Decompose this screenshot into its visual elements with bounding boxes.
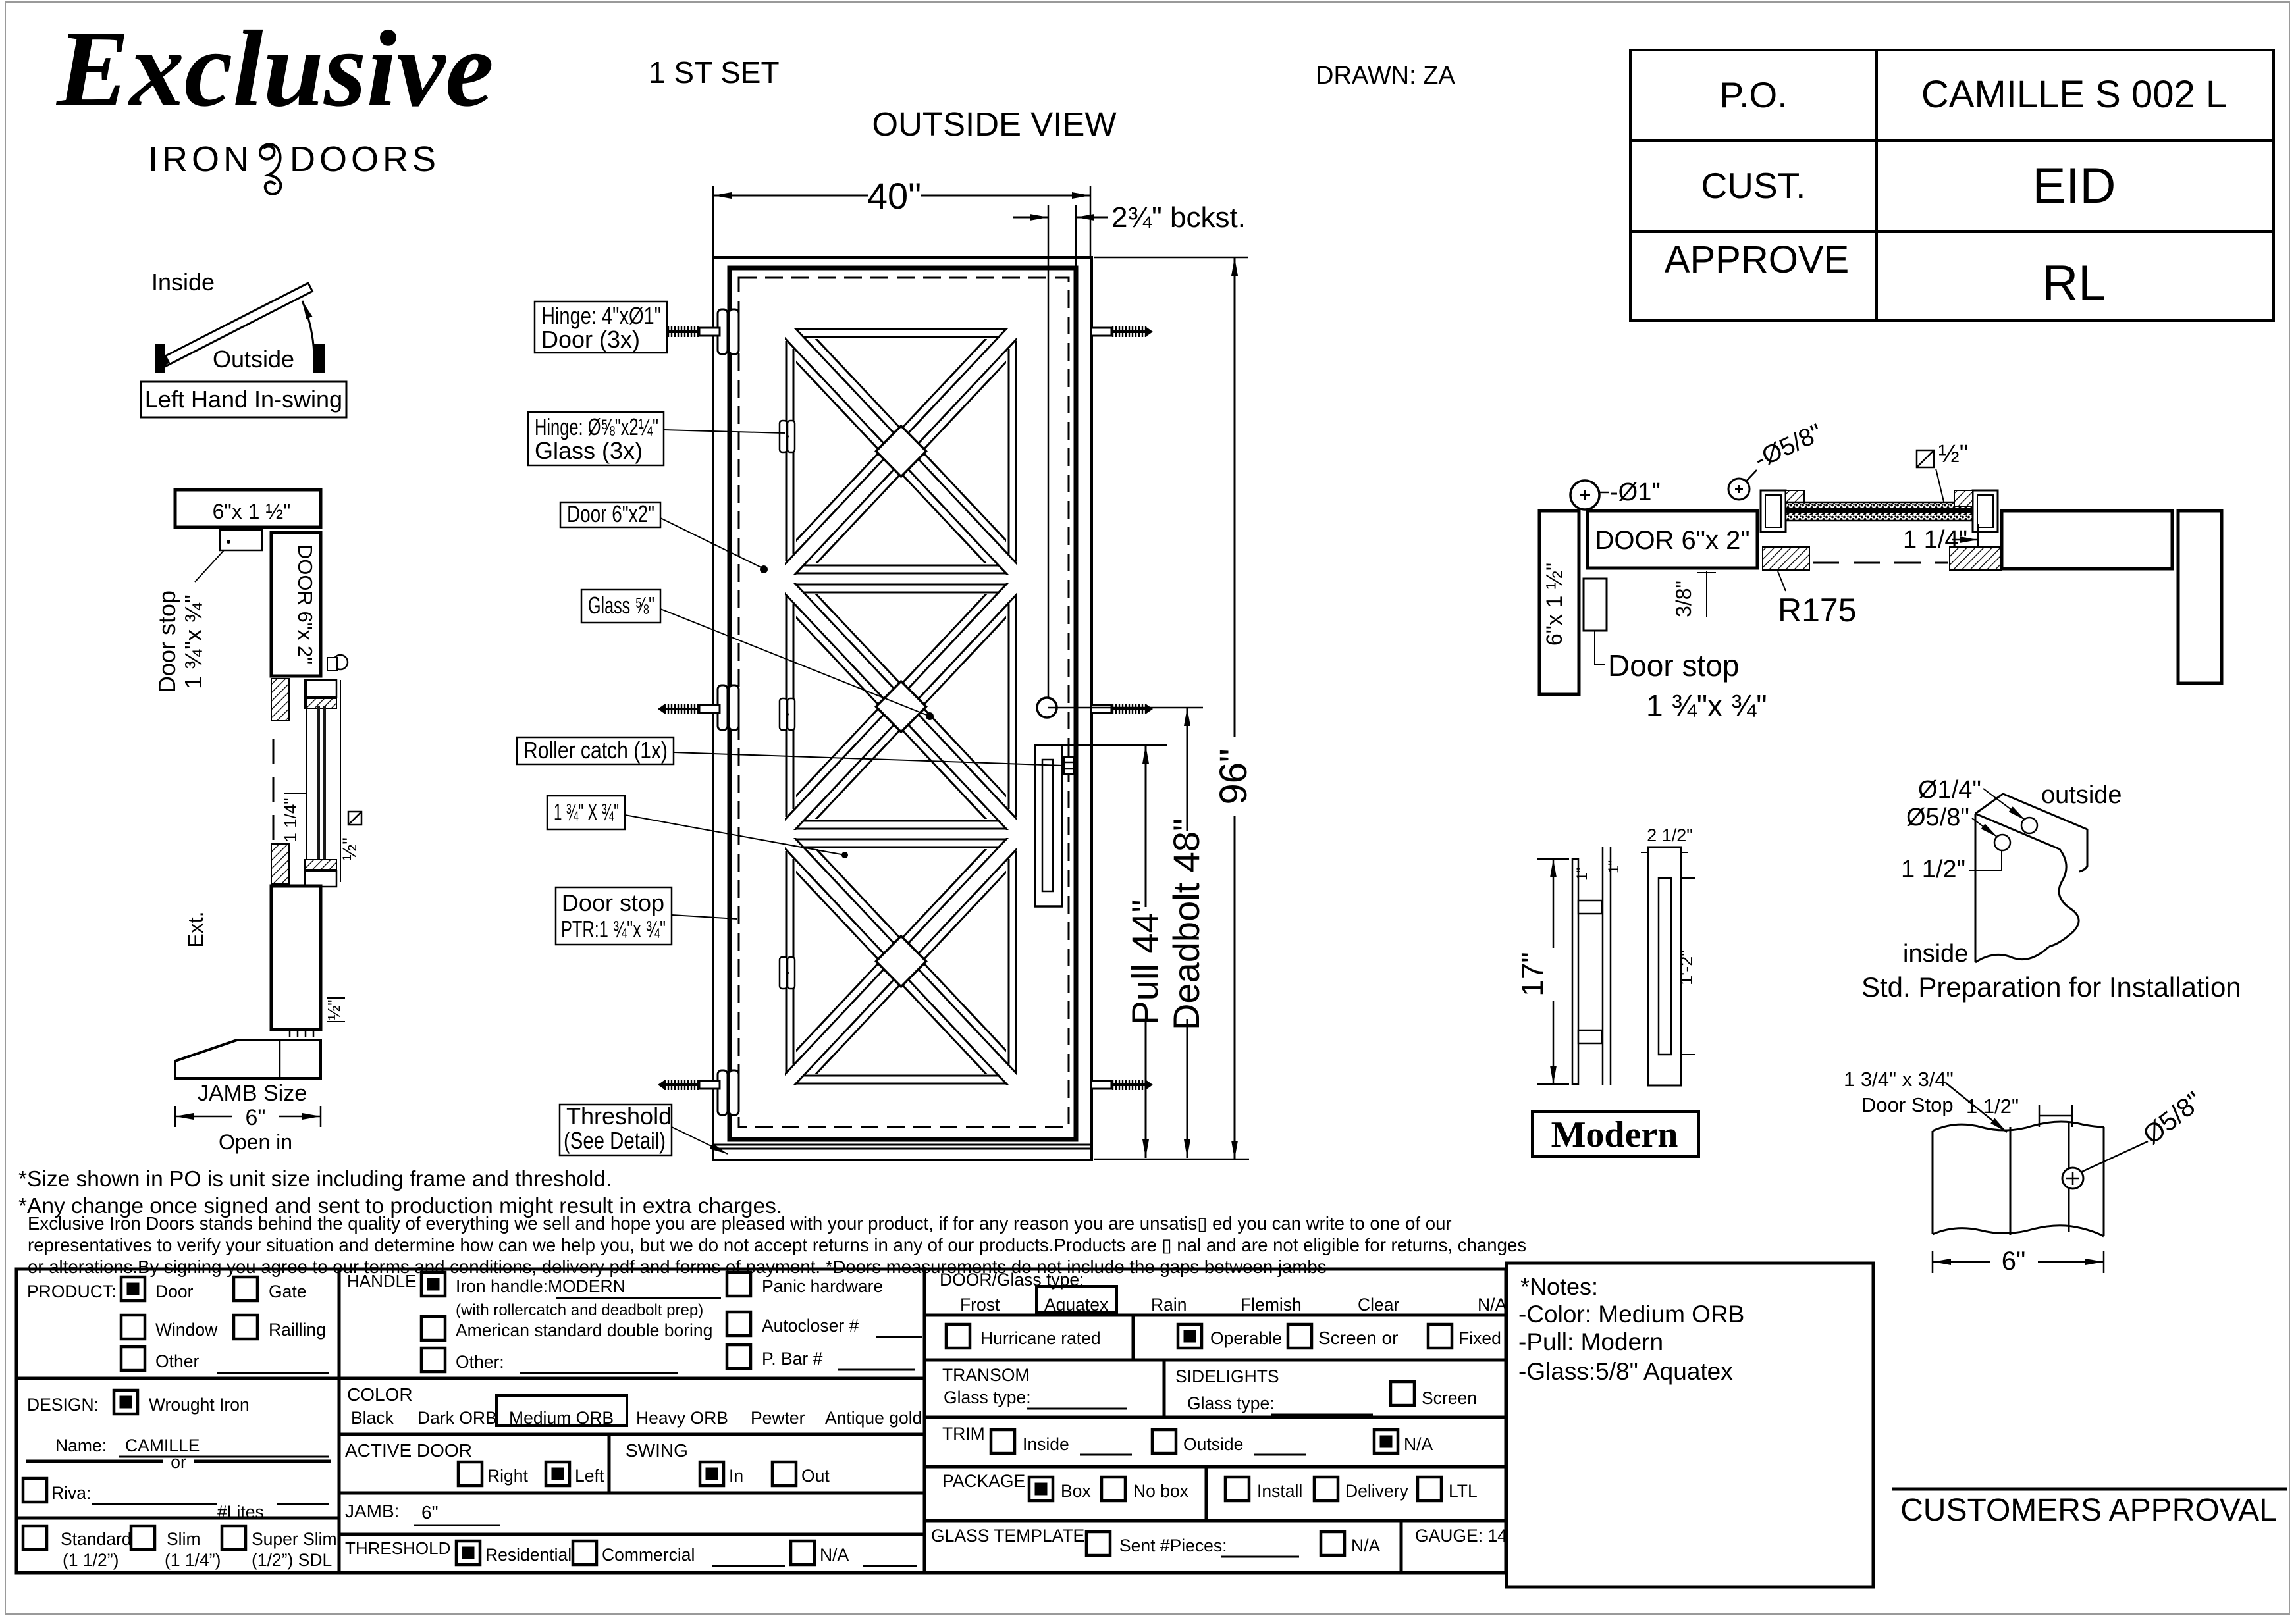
svg-text:In: In <box>729 1466 743 1486</box>
svg-text:CAMILLE S 002 L: CAMILLE S 002 L <box>1921 73 2227 116</box>
svg-text:DRAWN: ZA: DRAWN: ZA <box>1316 62 1455 90</box>
svg-text:Outside: Outside <box>1183 1434 1243 1454</box>
svg-text:Clear: Clear <box>1358 1295 1400 1315</box>
svg-text:Medium ORB: Medium ORB <box>509 1408 614 1428</box>
svg-text:CUST.: CUST. <box>1701 165 1806 206</box>
svg-text:COLOR: COLOR <box>347 1384 413 1405</box>
svg-text:1 ¾"x ¾": 1 ¾"x ¾" <box>180 594 207 689</box>
svg-text:LTL: LTL <box>1449 1481 1478 1501</box>
svg-text:Install: Install <box>1257 1481 1302 1501</box>
svg-text:DESIGN:: DESIGN: <box>27 1395 99 1415</box>
svg-text:Right: Right <box>487 1466 529 1486</box>
svg-text:Riva:: Riva: <box>51 1483 91 1503</box>
svg-text:6"x 1 ½": 6"x 1 ½" <box>213 500 291 523</box>
svg-text:*Notes:: *Notes: <box>1520 1273 1598 1300</box>
svg-text:Residential: Residential <box>485 1545 572 1565</box>
svg-text:Hurricane rated: Hurricane rated <box>980 1328 1101 1348</box>
svg-text:Antique gold: Antique gold <box>825 1408 922 1428</box>
svg-text:Door stop: Door stop <box>1608 648 1739 683</box>
svg-text:17": 17" <box>1515 952 1549 997</box>
svg-text:inside: inside <box>1903 940 1968 968</box>
svg-text:or alterations.By signing you: or alterations.By signing you agree to o… <box>28 1257 1327 1277</box>
svg-text:SIDELIGHTS: SIDELIGHTS <box>1175 1367 1279 1386</box>
svg-text:Standard: Standard <box>61 1529 132 1549</box>
svg-text:N/A: N/A <box>820 1545 849 1565</box>
svg-text:(1 1/4”): (1 1/4”) <box>165 1550 221 1570</box>
svg-text:Door stop: Door stop <box>562 889 664 916</box>
svg-text:Inside: Inside <box>151 269 215 296</box>
svg-text:½": ½" <box>324 1000 344 1020</box>
svg-text:96": 96" <box>1212 748 1255 804</box>
svg-text:CAMILLE: CAMILLE <box>125 1436 200 1455</box>
svg-text:Glass (3x): Glass (3x) <box>535 437 643 464</box>
svg-text:N/A: N/A <box>1478 1295 1507 1315</box>
svg-text:R175: R175 <box>1778 592 1857 629</box>
svg-text:6"x 1 ½": 6"x 1 ½" <box>1542 563 1567 646</box>
svg-text:American standard double borin: American standard double boring <box>456 1320 712 1340</box>
svg-text:N/A: N/A <box>1351 1536 1381 1555</box>
svg-text:Left: Left <box>575 1466 604 1486</box>
svg-text:HANDLE: HANDLE <box>347 1271 416 1291</box>
svg-text:Pull 44": Pull 44" <box>1124 899 1165 1025</box>
svg-text:OUTSIDE VIEW: OUTSIDE VIEW <box>872 105 1116 143</box>
svg-text:1 1/2": 1 1/2" <box>1901 856 1965 883</box>
svg-text:Slim: Slim <box>167 1529 201 1549</box>
svg-text:Screen: Screen <box>1422 1388 1477 1408</box>
svg-text:Delivery: Delivery <box>1345 1481 1408 1501</box>
svg-text:APPROVE: APPROVE <box>1665 238 1849 281</box>
svg-text:EID: EID <box>2033 158 2116 214</box>
svg-text:(1 1/2”): (1 1/2”) <box>63 1550 119 1570</box>
svg-text:Glass ⅝": Glass ⅝" <box>588 592 654 619</box>
svg-text:40": 40" <box>867 175 921 217</box>
svg-text:Aquatex: Aquatex <box>1044 1295 1108 1315</box>
svg-text:RL: RL <box>2042 255 2106 311</box>
svg-text:6": 6" <box>421 1502 439 1523</box>
svg-text:1 1/2": 1 1/2" <box>1966 1095 2019 1118</box>
svg-text:-Ø1": -Ø1" <box>1610 479 1661 506</box>
svg-text:Other: Other <box>155 1351 199 1371</box>
svg-text:Hinge: 4"xØ1": Hinge: 4"xØ1" <box>541 302 661 329</box>
svg-text:Door Stop: Door Stop <box>1861 1093 1954 1116</box>
svg-text:Outside: Outside <box>213 346 294 373</box>
svg-text:1": 1" <box>1605 860 1622 873</box>
svg-text:SWING: SWING <box>626 1440 688 1461</box>
svg-text:1 ¾" X ¾": 1 ¾" X ¾" <box>554 798 619 825</box>
svg-text:Exclusive: Exclusive <box>55 8 494 129</box>
svg-text:Left Hand In-swing: Left Hand In-swing <box>145 386 342 413</box>
svg-text:Out: Out <box>801 1466 830 1486</box>
svg-text:IRON: IRON <box>148 140 253 179</box>
svg-text:Glass type:: Glass type: <box>1187 1394 1275 1413</box>
svg-text:Gate: Gate <box>269 1282 306 1301</box>
svg-text:Ext.: Ext. <box>184 911 207 947</box>
svg-text:Glass type:: Glass type: <box>944 1388 1031 1407</box>
svg-text:CUSTOMERS APPROVAL: CUSTOMERS APPROVAL <box>1900 1493 2277 1528</box>
svg-text:Rain: Rain <box>1151 1295 1187 1315</box>
svg-text:representatives to verify your: representatives to verify your situation… <box>28 1235 1526 1255</box>
svg-text:PACKAGE: PACKAGE <box>942 1471 1025 1491</box>
svg-text:Commercial: Commercial <box>602 1545 695 1565</box>
svg-text:Open in: Open in <box>219 1130 292 1154</box>
svg-text:1 ST SET: 1 ST SET <box>649 55 780 90</box>
svg-text:½": ½" <box>1938 440 1968 468</box>
svg-text:Roller catch (1x): Roller catch (1x) <box>523 737 668 764</box>
svg-text:Door stop: Door stop <box>153 590 180 693</box>
svg-text:Heavy ORB: Heavy ORB <box>636 1408 728 1428</box>
svg-text:Box: Box <box>1061 1481 1091 1501</box>
svg-text:-Glass:5/8" Aquatex: -Glass:5/8" Aquatex <box>1518 1358 1733 1385</box>
svg-text:PRODUCT:: PRODUCT: <box>27 1282 116 1301</box>
svg-text:#Lites: #Lites <box>217 1502 264 1522</box>
svg-text:Flemish: Flemish <box>1241 1295 1302 1315</box>
svg-text:Sent #Pieces:: Sent #Pieces: <box>1119 1536 1227 1555</box>
svg-text:Iron handle:MODERN: Iron handle:MODERN <box>456 1276 626 1296</box>
svg-text:Dark ORB: Dark ORB <box>417 1408 497 1428</box>
svg-text:Other:: Other: <box>456 1352 504 1372</box>
svg-text:1'-2": 1'-2" <box>1676 950 1696 985</box>
svg-text:P.O.: P.O. <box>1720 74 1788 115</box>
svg-text:ACTIVE DOOR: ACTIVE DOOR <box>345 1440 472 1461</box>
svg-text:DOORS: DOORS <box>290 140 440 179</box>
svg-text:Super Slim: Super Slim <box>252 1529 337 1549</box>
svg-text:Inside: Inside <box>1023 1434 1069 1454</box>
svg-text:1": 1" <box>1574 868 1590 881</box>
svg-text:1 ¾"x ¾": 1 ¾"x ¾" <box>1646 689 1767 723</box>
svg-text:Name:: Name: <box>55 1436 107 1455</box>
svg-text:Ø5/8": Ø5/8" <box>1906 804 1969 831</box>
svg-text:Threshold: Threshold <box>566 1103 672 1130</box>
svg-text:Door (3x): Door (3x) <box>541 326 640 353</box>
svg-text:3/8": 3/8" <box>1672 581 1695 617</box>
svg-text:6": 6" <box>2002 1247 2025 1276</box>
svg-text:TRANSOM: TRANSOM <box>942 1365 1030 1385</box>
svg-text:Deadbolt 48": Deadbolt 48" <box>1165 818 1207 1030</box>
svg-text:Door: Door <box>155 1282 194 1301</box>
svg-text:-Color: Medium ORB: -Color: Medium ORB <box>1518 1301 1744 1328</box>
svg-text:½": ½" <box>339 837 361 861</box>
svg-text:-Pull: Modern: -Pull: Modern <box>1518 1328 1663 1355</box>
svg-text:PTR:1 ¾"x ¾": PTR:1 ¾"x ¾" <box>561 916 666 943</box>
svg-text:Modern: Modern <box>1551 1114 1678 1155</box>
svg-text:Railling: Railling <box>269 1320 326 1340</box>
svg-text:Std. Preparation for Installat: Std. Preparation for Installation <box>1861 972 2241 1003</box>
svg-text:(1/2”) SDL: (1/2”) SDL <box>252 1550 332 1570</box>
svg-text:THRESHOLD: THRESHOLD <box>345 1538 450 1558</box>
svg-text:Fixed: Fixed <box>1458 1328 1501 1348</box>
svg-text:or: or <box>171 1452 186 1472</box>
svg-text:Autocloser #: Autocloser # <box>762 1316 859 1336</box>
svg-text:outside: outside <box>2041 781 2122 809</box>
svg-text:2¾" bckst.: 2¾" bckst. <box>1111 201 1246 234</box>
svg-text:(See Detail): (See Detail) <box>564 1127 666 1154</box>
svg-text:Wrought Iron: Wrought Iron <box>149 1395 250 1415</box>
svg-text:Frost: Frost <box>960 1295 1000 1315</box>
svg-text:Ø1/4": Ø1/4" <box>1918 776 1981 804</box>
svg-text:JAMB:: JAMB: <box>345 1501 399 1521</box>
svg-text:(with rollercatch and deadbolt: (with rollercatch and deadbolt prep) <box>456 1301 703 1319</box>
svg-text:Hinge: Ø⅝"x2¼": Hinge: Ø⅝"x2¼" <box>535 413 658 440</box>
svg-text:Black: Black <box>351 1408 394 1428</box>
svg-text:2 1/2": 2 1/2" <box>1647 825 1693 845</box>
svg-text:Panic hardware: Panic hardware <box>762 1276 883 1296</box>
svg-text:N/A: N/A <box>1404 1434 1433 1454</box>
svg-text:1 3/4" x 3/4": 1 3/4" x 3/4" <box>1844 1068 1954 1091</box>
svg-text:DOOR 6"x 2": DOOR 6"x 2" <box>294 544 317 664</box>
svg-text:-Ø5/8": -Ø5/8" <box>1750 419 1827 474</box>
svg-text:Operable: Operable <box>1210 1328 1282 1348</box>
svg-text:6": 6" <box>246 1105 266 1130</box>
svg-text:*Size shown in PO is unit size: *Size shown in PO is unit size including… <box>18 1167 612 1191</box>
svg-text:GLASS TEMPLATE: GLASS TEMPLATE <box>931 1526 1084 1546</box>
svg-text:Window: Window <box>155 1320 218 1340</box>
svg-text:P. Bar #: P. Bar # <box>762 1349 823 1368</box>
svg-text:Ø5/8": Ø5/8" <box>2137 1086 2208 1150</box>
svg-text:Exclusive Iron Doors stands be: Exclusive Iron Doors stands behind the q… <box>28 1213 1452 1234</box>
svg-text:1 1/4": 1 1/4" <box>280 798 300 842</box>
svg-text:No box: No box <box>1133 1481 1188 1501</box>
svg-text:Pewter: Pewter <box>751 1408 805 1428</box>
svg-text:TRIM: TRIM <box>942 1424 985 1444</box>
svg-text:GAUGE: 14: GAUGE: 14 <box>1415 1526 1507 1546</box>
svg-text:JAMB Size: JAMB Size <box>198 1081 307 1106</box>
svg-text:Screen or: Screen or <box>1318 1328 1398 1348</box>
svg-text:DOOR 6"x 2": DOOR 6"x 2" <box>1595 526 1749 555</box>
svg-text:Door 6"x2": Door 6"x2" <box>567 500 654 527</box>
